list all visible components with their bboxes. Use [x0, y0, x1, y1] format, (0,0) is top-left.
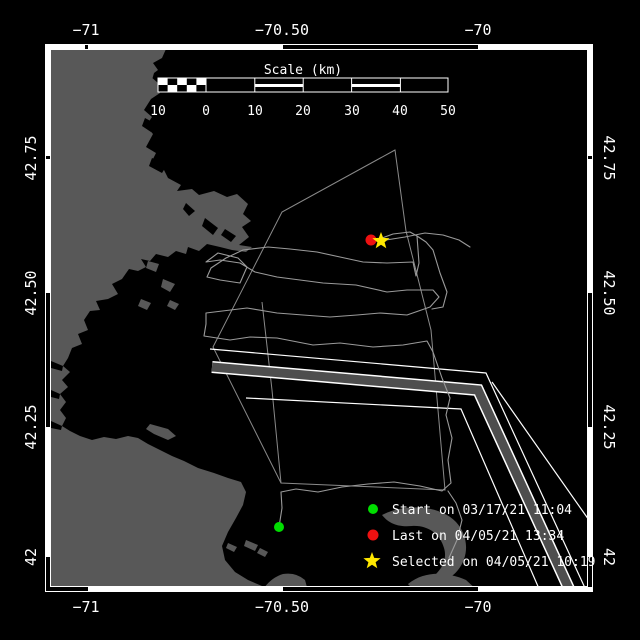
scale-tick: 50 — [440, 104, 456, 119]
tick-notch — [85, 45, 88, 50]
lat-label-right: 42.50 — [600, 270, 618, 315]
lon-label-bottom: −70.50 — [255, 598, 309, 616]
lat-label-left: 42.75 — [22, 135, 40, 180]
lon-label-bottom: −71 — [72, 598, 99, 616]
legend-selected-label: Selected on 04/05/21 10:19 — [392, 555, 596, 570]
lat-label-left: 42.25 — [22, 404, 40, 449]
scale-tick: 10 — [150, 104, 166, 119]
scale-tick: 10 — [247, 104, 263, 119]
legend-last-label: Last on 04/05/21 13:34 — [392, 529, 564, 544]
map-canvas: Scale (km) 10 0 10 20 30 40 50 −71 −70.5… — [0, 0, 640, 640]
legend-start-dot — [368, 504, 378, 514]
scale-tick: 0 — [202, 104, 210, 119]
lat-label-right: 42.75 — [600, 135, 618, 180]
drifter-track-map: Scale (km) 10 0 10 20 30 40 50 −71 −70.5… — [0, 0, 640, 640]
tick-notch — [588, 156, 593, 159]
scale-tick: 40 — [392, 104, 408, 119]
start-position-marker — [274, 522, 284, 532]
lon-label-top: −70 — [464, 21, 491, 39]
tick-notch — [46, 156, 51, 159]
scale-bar-title: Scale (km) — [264, 63, 342, 78]
lat-label-left: 42 — [22, 548, 40, 566]
lat-label-right: 42.25 — [600, 404, 618, 449]
lon-label-top: −71 — [72, 21, 99, 39]
scale-tick: 20 — [295, 104, 311, 119]
legend: Start on 03/17/21 11:04 Last on 04/05/21… — [363, 503, 595, 570]
lat-label-right: 42 — [600, 548, 618, 566]
legend-start-label: Start on 03/17/21 11:04 — [392, 503, 572, 518]
legend-last-dot — [368, 530, 379, 541]
lat-label-left: 42.50 — [22, 270, 40, 315]
scale-tick: 30 — [344, 104, 360, 119]
lon-label-bottom: −70 — [464, 598, 491, 616]
lon-label-top: −70.50 — [255, 21, 309, 39]
